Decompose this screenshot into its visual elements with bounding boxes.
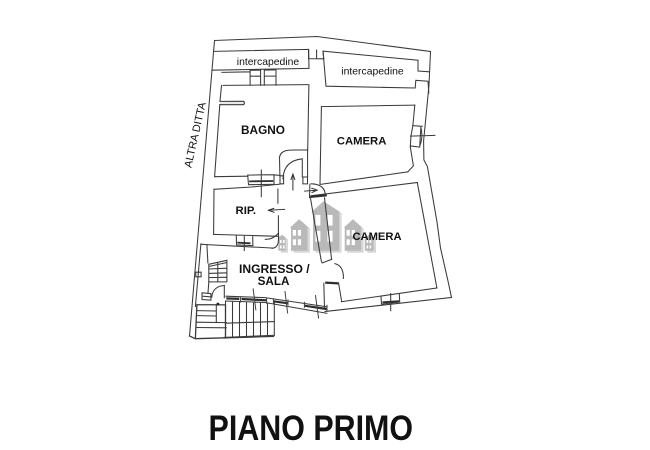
svg-text:CAMERA: CAMERA xyxy=(337,136,387,148)
svg-text:PIANO PRIMO: PIANO PRIMO xyxy=(209,409,414,448)
svg-text:intercapedine: intercapedine xyxy=(237,57,300,68)
svg-text:SALA: SALA xyxy=(258,275,290,288)
svg-text:BAGNO: BAGNO xyxy=(241,123,285,137)
svg-text:RIP.: RIP. xyxy=(236,205,257,217)
svg-text:intercapedine: intercapedine xyxy=(341,66,404,77)
svg-text:CAMERA: CAMERA xyxy=(352,231,401,243)
svg-text:INGRESSO /: INGRESSO / xyxy=(239,262,310,276)
